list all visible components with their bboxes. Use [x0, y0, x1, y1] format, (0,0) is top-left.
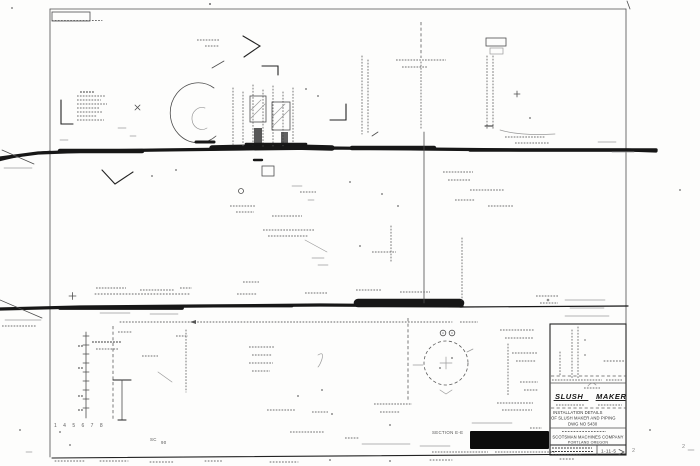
- plus-mark: [69, 293, 76, 300]
- redaction-box: [470, 431, 549, 449]
- title-block-footer: 1-11-5: [552, 445, 624, 455]
- chevron-mark: [243, 36, 260, 57]
- hatched-equipment-box: [272, 102, 290, 130]
- mid-sheet-clusters: [95, 160, 609, 324]
- section-label: SECTION E-E: [432, 430, 463, 435]
- check-mark: [102, 170, 133, 184]
- leader-line: [305, 240, 327, 252]
- angle-bracket-mark: [330, 104, 346, 120]
- x-mark: [135, 105, 140, 110]
- upper-center-equipment-cluster: [170, 36, 378, 146]
- angle-bracket-mark: [61, 100, 73, 124]
- title-line-3: DWG NO 5430: [568, 422, 598, 427]
- brand-logos: SLUSH MAKER: [554, 392, 627, 405]
- fold-crease-top: [0, 147, 656, 168]
- plus-mark: [514, 91, 520, 97]
- drawing-number: 1-11-5: [601, 449, 616, 454]
- title-block: SLUSH MAKER INSTALLATION DETAILS OF SLUS…: [550, 324, 627, 455]
- logo-slush: SLUSH: [555, 392, 583, 401]
- title-line-2: OF SLUSH MAKER AND PIPING: [551, 416, 616, 421]
- logo-maker: MAKER: [596, 392, 627, 401]
- drawing-canvas: 1 4 5 6 7 8 SC 90 SECTION E-E: [0, 0, 700, 466]
- dimension-arrowhead: [190, 320, 196, 324]
- grid-number-row: 1 4 5 6 7 8: [54, 423, 105, 429]
- stray-mark-2: 2: [682, 444, 685, 450]
- lower-left-dimension-cluster: 1 4 5 6 7 8 SC 90: [54, 326, 188, 446]
- company-name: SCOTSMAN MACHINES COMPANY: [552, 435, 623, 440]
- fold-crease-bottom: [0, 293, 628, 327]
- corner-tick: [627, 1, 630, 9]
- center-cross: [440, 357, 452, 369]
- mark-90: 90: [161, 440, 167, 445]
- scan-noise-row: [55, 459, 574, 462]
- mark-sc: SC: [150, 437, 157, 442]
- section-and-redaction: SECTION E-E: [432, 430, 555, 452]
- title-line-1: INSTALLATION DETAILS: [553, 410, 603, 415]
- notes-block: [77, 96, 107, 120]
- left-notes-cluster: [60, 92, 177, 184]
- scanned-drawing-page: 1 4 5 6 7 8 SC 90 SECTION E-E: [0, 0, 700, 466]
- sheet-border: [11, 1, 630, 458]
- drawing-title: INSTALLATION DETAILS OF SLUSH MAKER AND …: [551, 410, 616, 427]
- company-city: PORTLAND OREGON: [568, 441, 609, 445]
- detail-circle-cluster: [362, 322, 542, 446]
- revision-table: [551, 327, 626, 383]
- stray-mark-1: 2: [632, 448, 635, 454]
- upper-right-column-cluster: [396, 38, 634, 152]
- centerlines: [408, 22, 462, 402]
- signature-squiggle: [588, 383, 596, 386]
- caution-note: [263, 230, 315, 236]
- company-block: SCOTSMAN MACHINES COMPANY PORTLAND OREGO…: [552, 432, 623, 445]
- angle-bracket-mark: [262, 66, 278, 75]
- zone-box: [52, 12, 90, 21]
- lower-middle-cluster: [249, 347, 359, 438]
- squiggle-mark: [318, 354, 323, 367]
